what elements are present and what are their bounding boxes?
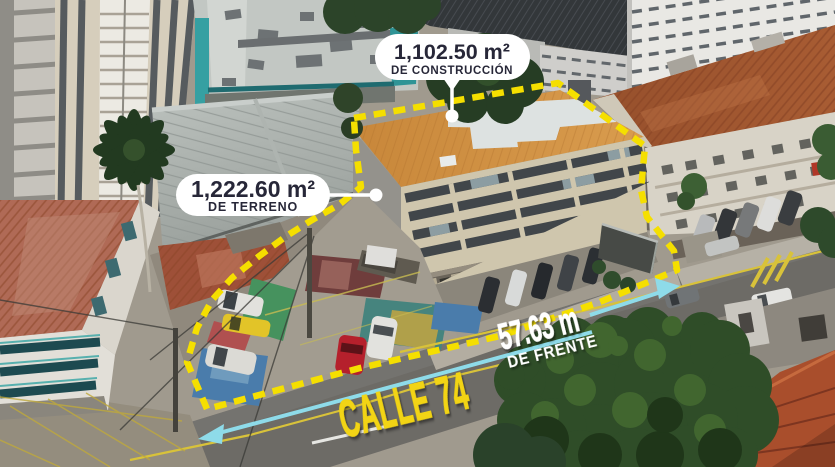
svg-text:DE CONSTRUCCIÓN: DE CONSTRUCCIÓN <box>391 64 513 77</box>
svg-text:1,222.60 m²: 1,222.60 m² <box>191 176 315 202</box>
svg-text:DE TERRENO: DE TERRENO <box>208 200 298 214</box>
svg-text:1,102.50 m²: 1,102.50 m² <box>394 40 510 64</box>
